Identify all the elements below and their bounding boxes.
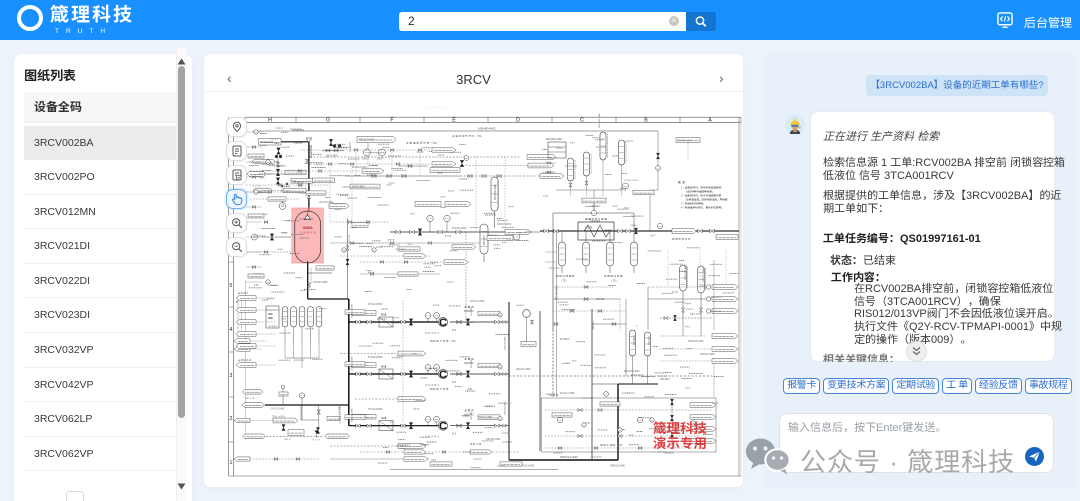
svg-text:闸 组: 闸 组 — [381, 313, 387, 317]
svg-text:4 7 9 0: 4 7 9 0 — [253, 184, 261, 188]
svg-text:3RCV347-4WC: 3RCV347-4WC — [686, 264, 688, 280]
svg-text:G: G — [326, 118, 330, 124]
svg-text:连排: 连排 — [267, 312, 273, 316]
svg-text:H: H — [268, 118, 272, 124]
svg-text:4 - 机组维护检修时，相关系统隔离。: 4 - 机组维护检修时，相关系统隔离。 — [681, 206, 724, 210]
svg-text:340-DL3: 340-DL3 — [593, 320, 595, 330]
svg-text:C: C — [580, 118, 584, 124]
svg-text:连 排 至 甲 乙: 连 排 至 甲 乙 — [424, 383, 440, 387]
svg-text:DE-DLT-4WC: DE-DLT-4WC — [359, 138, 375, 142]
svg-text:375-013: 375-013 — [596, 299, 605, 301]
svg-text:自 除 盐 水 系 统: 自 除 盐 水 系 统 — [430, 387, 449, 391]
svg-text:0102PO: 0102PO — [516, 305, 524, 307]
svg-text:379-013-HMC: 379-013-HMC — [270, 408, 285, 411]
svg-text:C: C — [439, 317, 447, 329]
svg-text:W 3: W 3 — [452, 381, 457, 384]
svg-text:自 除 盐 水 系 统 （TE）: 自 除 盐 水 系 统 （TE） — [430, 339, 457, 343]
svg-text:（TE）: （TE） — [560, 279, 568, 283]
svg-text:F: F — [390, 118, 393, 124]
svg-text:379-013: 379-013 — [471, 411, 473, 420]
svg-text:自 取 样 系 统: 自 取 样 系 统 — [238, 358, 252, 362]
svg-text:3RCV201-4WC: 3RCV201-4WC — [599, 113, 601, 128]
svg-text:345-DL3-4WC: 345-DL3-4WC — [704, 267, 706, 282]
svg-text:D4-3RCV: D4-3RCV — [634, 335, 636, 345]
svg-text:均应按照标准图集规定。: 均应按照标准图集规定。 — [685, 190, 715, 194]
svg-text:除 氧 水 箱: 除 氧 水 箱 — [470, 442, 482, 446]
svg-text:备 注：: 备 注： — [677, 181, 688, 185]
svg-text:340-DL3-4WC: 340-DL3-4WC — [352, 304, 354, 318]
svg-text:340-013-4WC: 340-013-4WC — [505, 336, 507, 350]
svg-text:3RCV347-4WC: 3RCV347-4WC — [624, 371, 640, 373]
svg-text:379-DL7-PMC: 379-DL7-PMC — [478, 417, 493, 419]
svg-text:PLS-012-4WC: PLS-012-4WC — [340, 405, 342, 420]
svg-text:375-013-4WC: 375-013-4WC — [313, 281, 328, 284]
svg-text:连 排 系 统 去 向: 连 排 系 统 去 向 — [671, 237, 691, 241]
svg-text:208VP: 208VP — [556, 148, 563, 150]
svg-text:374-DL3-PMC: 374-DL3-PMC — [368, 357, 383, 359]
svg-text:连 排 至 甲 乙: 连 排 至 甲 乙 — [424, 331, 440, 335]
svg-text:主 管 道 坐 标 为 界 （TE）: 主 管 道 坐 标 为 界 （TE） — [406, 141, 439, 145]
svg-text:379-013: 379-013 — [471, 359, 473, 368]
svg-text:379-DL3-4WC: 379-DL3-4WC — [520, 466, 535, 468]
svg-text:3 - 机组检修隔离阀。: 3 - 机组检修隔离阀。 — [681, 202, 706, 206]
svg-text:RCV2B F1B: RCV2B F1B — [260, 141, 273, 144]
svg-text:3RCV206-4WC: 3RCV206-4WC — [495, 184, 497, 200]
svg-text:SI-DLT-4WC: SI-DLT-4WC — [352, 187, 365, 189]
svg-text:D6-CAC3-4WC: D6-CAC3-4WC — [677, 139, 692, 142]
svg-text:340-013-HMC: 340-013-HMC — [486, 439, 501, 441]
svg-text:3 充 料 区: 3 充 料 区 — [548, 393, 559, 397]
svg-text:340-DL3-4WC: 340-DL3-4WC — [516, 369, 531, 371]
svg-text:非 再 生 热 交 换 器: 非 再 生 热 交 换 器 — [584, 217, 607, 221]
svg-text:E: E — [452, 118, 456, 124]
svg-text:L0B-483-4WC: L0B-483-4WC — [478, 126, 496, 130]
svg-text:374-DL3-PMC: 374-DL3-PMC — [368, 409, 383, 411]
svg-text:W 3: W 3 — [452, 433, 457, 436]
svg-text:个 7 么 P: 个 7 么 P — [312, 439, 321, 442]
svg-text:D4-3RCV: D4-3RCV — [560, 339, 570, 341]
svg-text:206V7: 206V7 — [362, 159, 369, 161]
svg-text:3RB-DL3-4WC: 3RB-DL3-4WC — [610, 466, 626, 468]
svg-text:V8 083-4WC: V8 083-4WC — [311, 145, 313, 158]
svg-text:3RB-013-4WC: 3RB-013-4WC — [560, 455, 578, 459]
svg-text:C: C — [439, 369, 447, 381]
svg-text:3RCV347-4WC: 3RCV347-4WC — [688, 341, 704, 343]
svg-text:345-DL3-4WC: 345-DL3-4WC — [700, 354, 715, 356]
svg-text:3: 3 — [230, 373, 233, 379]
svg-text:D: D — [516, 118, 520, 124]
svg-text:连 排 冷 却 器 群: 连 排 冷 却 器 群 — [555, 274, 575, 278]
svg-text:自: 自 — [236, 300, 239, 304]
svg-text:及保温管道，应按规定选型，并按图: 及保温管道，应按规定选型，并按图 — [685, 198, 728, 202]
svg-text:340-DL3-4WC: 340-DL3-4WC — [352, 408, 354, 422]
svg-text:8: 8 — [636, 326, 638, 328]
svg-text:375-013: 375-013 — [649, 336, 651, 345]
svg-text:连 排 至 甲 乙: 连 排 至 甲 乙 — [424, 435, 440, 439]
svg-text:345-4WC: 345-4WC — [660, 379, 670, 381]
svg-text:206V7: 206V7 — [377, 159, 384, 161]
svg-text:374-DL3-PMC: 374-DL3-PMC — [368, 304, 383, 306]
svg-text:安 全 壳 内 箱: 安 全 壳 内 箱 — [300, 230, 316, 234]
svg-text:1 - 设备区域内，现场仪表管道附件，: 1 - 设备区域内，现场仪表管道附件， — [681, 186, 724, 190]
svg-text:（TE）: （TE） — [610, 279, 618, 283]
svg-text:180° F: 180° F — [284, 439, 291, 441]
svg-text:- — -· · —: - — -· · — — [427, 104, 445, 109]
svg-text:4: 4 — [230, 327, 233, 333]
svg-text:凝 结 水 箱 区 （TE）: 凝 结 水 箱 区 （TE） — [600, 443, 624, 447]
svg-text:3RCV7046C3: 3RCV7046C3 — [497, 224, 512, 226]
svg-text:1047: 1047 — [650, 235, 656, 238]
svg-text:3RCV207: 3RCV207 — [484, 234, 486, 245]
svg-text:设 备 区 域 分 界 线 （TE）: 设 备 区 域 分 界 线 （TE） — [451, 134, 484, 138]
svg-text:1: 1 — [230, 460, 233, 466]
svg-text:B: B — [644, 118, 648, 124]
svg-text:0003F: 0003F — [585, 226, 593, 230]
svg-text:2: 2 — [230, 416, 233, 422]
svg-text:阀组: 阀组 — [268, 316, 273, 320]
svg-text:个 可 么 七: 个 可 么 七 — [244, 396, 255, 400]
svg-text:573-013-4WC: 573-013-4WC — [452, 228, 467, 230]
svg-text:374-DL7-4WC: 374-DL7-4WC — [560, 393, 575, 395]
svg-text:自 除 盐 水: 自 除 盐 水 — [238, 291, 249, 295]
svg-text:闸 组: 闸 组 — [381, 416, 387, 420]
svg-text:340-DL3-4WC: 340-DL3-4WC — [352, 356, 354, 370]
svg-text:379-DL7-PMC: 379-DL7-PMC — [470, 301, 485, 303]
svg-text:0028A: 0028A — [303, 226, 314, 230]
svg-text:2 - 设备区域内，低于环境温度布置: 2 - 设备区域内，低于环境温度布置 — [681, 194, 721, 198]
svg-text:D4-3RCV-4WC: D4-3RCV-4WC — [624, 180, 639, 182]
svg-text:3PL-012-4WC: 3PL-012-4WC — [557, 285, 559, 300]
svg-text:闸 组: 闸 组 — [381, 365, 387, 369]
svg-text:DM-CAC0-4WC: DM-CAC0-4WC — [546, 138, 563, 141]
svg-text:W 3: W 3 — [452, 329, 457, 332]
svg-text:主 连 排 冷 却 器: 主 连 排 冷 却 器 — [604, 274, 623, 278]
svg-text:A: A — [708, 118, 712, 124]
svg-text:379-013: 379-013 — [471, 307, 473, 316]
svg-text:5: 5 — [230, 283, 233, 289]
svg-text:C: C — [439, 421, 447, 433]
